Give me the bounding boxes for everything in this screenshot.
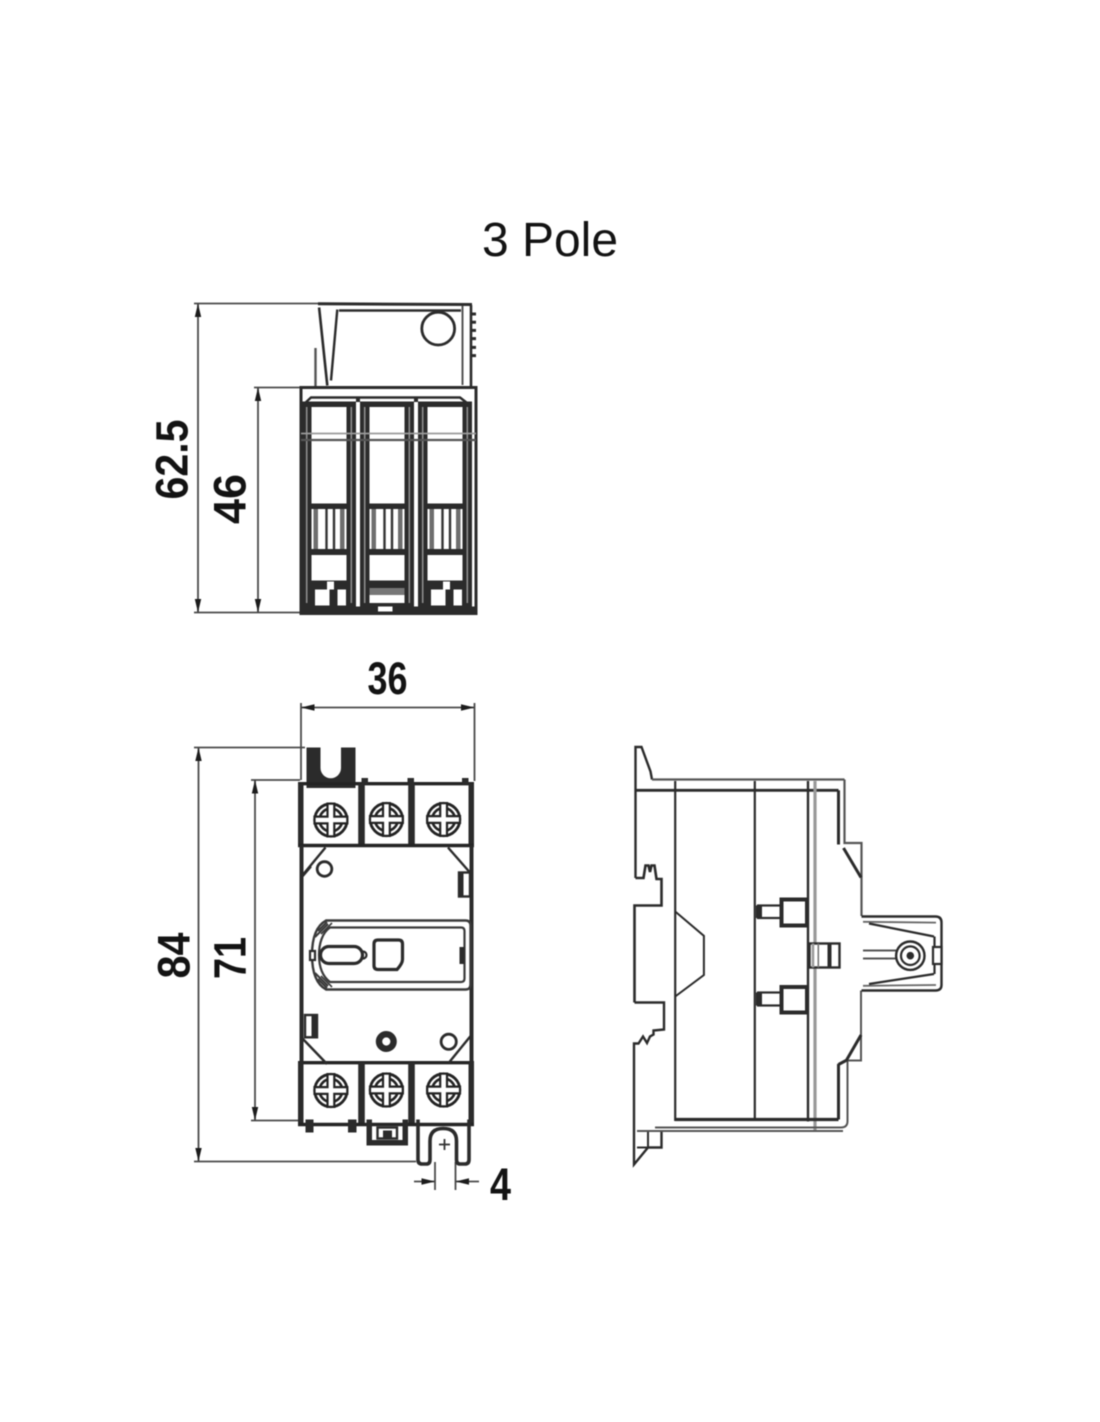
svg-text:84: 84 [149,933,200,979]
svg-text:3 Pole: 3 Pole [482,214,618,267]
svg-text:4: 4 [490,1159,511,1210]
svg-text:36: 36 [368,653,408,704]
svg-text:46: 46 [205,474,256,524]
svg-text:62.5: 62.5 [147,420,198,500]
svg-text:71: 71 [205,937,256,979]
